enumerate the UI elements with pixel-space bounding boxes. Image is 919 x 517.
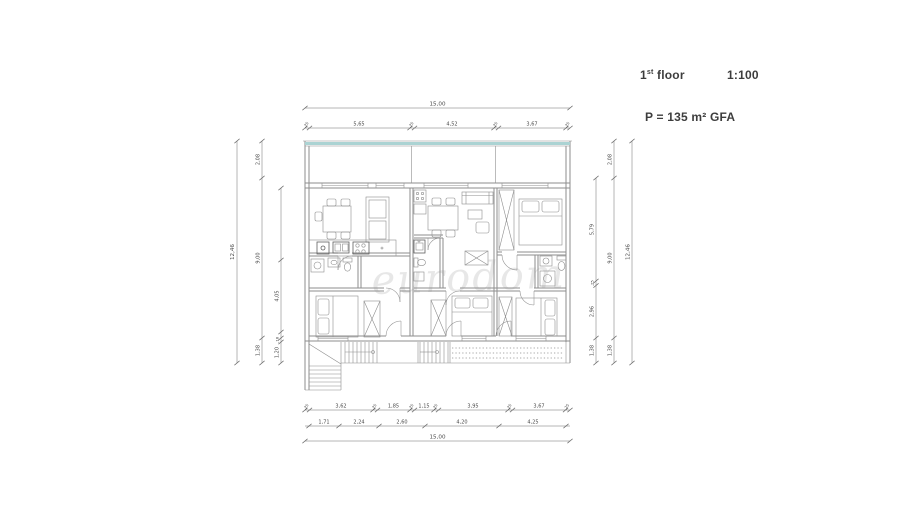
bedroom-right-bottom	[499, 297, 557, 336]
gallery-hatch	[452, 348, 564, 358]
chair	[432, 230, 441, 237]
coffee-table	[468, 210, 482, 219]
dim-label: 2,08	[608, 154, 614, 165]
dim-label: 3,95	[467, 404, 478, 410]
sink-icon	[333, 242, 349, 253]
dim-label: 9,00	[256, 252, 262, 263]
dim-label: ,25	[370, 402, 378, 410]
hob-icon	[414, 190, 426, 202]
dim-label: 12,46	[230, 244, 236, 260]
bedroom-right-top	[499, 190, 562, 250]
dim-label: 5,65	[353, 122, 364, 128]
double-bed	[519, 199, 562, 245]
dim-label: 12,46	[626, 244, 632, 260]
toilet-icon	[343, 258, 352, 262]
dim-label: ,25	[590, 280, 595, 287]
dim-label: 4,20	[456, 420, 467, 426]
bathroom-left	[311, 258, 352, 272]
pillow	[545, 300, 555, 316]
dim-label: 1,38	[608, 345, 614, 356]
dim-label: 5,79	[590, 224, 596, 235]
dim-label: 1,38	[590, 345, 596, 356]
dim-label: 9,00	[608, 252, 614, 263]
living-dining-left	[315, 197, 389, 242]
fridge-icon	[414, 204, 426, 214]
pillow	[522, 201, 539, 212]
double-bed	[316, 296, 358, 337]
dim-label: 3,67	[526, 122, 537, 128]
dim-label: ,25	[431, 402, 439, 410]
sofa	[462, 192, 493, 204]
double-bed	[452, 296, 492, 336]
bedroom-left	[316, 296, 380, 337]
dim-label: 3,67	[533, 404, 544, 410]
drawing-sheet: 1st floor 1:100 P = 135 m² GFA eurodom	[0, 0, 919, 517]
stairs-and-gallery	[305, 342, 570, 390]
dim-label: 1,15	[418, 404, 429, 410]
dim-label: ,25	[407, 402, 415, 410]
dim-label: 1,85	[388, 404, 399, 410]
dim-label: 1,38	[256, 345, 262, 356]
stair-break-line	[309, 344, 341, 364]
dim-label: 1,20	[275, 347, 281, 358]
dim-label: ,25	[563, 120, 571, 128]
dim-label: 1,71	[318, 420, 329, 426]
stair-flight-left	[309, 366, 341, 386]
armchair	[476, 222, 489, 233]
dim-label: 3,62	[335, 404, 346, 410]
washing-machine-icon	[311, 259, 324, 272]
dim-label: 2,96	[590, 306, 596, 317]
dim-label: 2,60	[396, 420, 407, 426]
pillow	[545, 319, 555, 335]
stair-flight-second	[420, 342, 448, 363]
floor-plan-svg: eurodom	[0, 0, 919, 517]
pillow	[318, 299, 329, 315]
chair	[446, 230, 455, 237]
chair	[315, 212, 322, 221]
dim-label: 4,25	[527, 420, 538, 426]
balcony-glazing	[303, 141, 572, 146]
dishwasher-icon	[317, 242, 329, 254]
pillow	[318, 318, 329, 334]
pillow	[542, 201, 559, 212]
chair	[327, 199, 336, 206]
chair	[341, 199, 350, 206]
double-bed	[516, 298, 557, 336]
dim-label: ,25	[407, 120, 415, 128]
dim-label: 15,00	[429, 435, 445, 441]
dim-label: ,25	[302, 120, 310, 128]
stair-flight-top	[345, 342, 377, 363]
chair	[446, 198, 455, 205]
kitchen-left	[309, 240, 396, 256]
stove-icon	[353, 242, 369, 254]
chair	[432, 198, 441, 205]
dim-label: ,25	[562, 402, 570, 410]
dining-table	[428, 206, 458, 230]
dim-label: 4,52	[446, 122, 457, 128]
dining-table	[323, 206, 351, 232]
sofa	[366, 197, 389, 242]
dim-label: ,25	[302, 402, 310, 410]
chair	[341, 232, 350, 239]
dim-label: 2,08	[256, 154, 262, 165]
dim-label: ,25	[491, 120, 499, 128]
bedroom-middle	[431, 296, 492, 336]
dim-label: ,25	[505, 402, 513, 410]
dim-label: 4,05	[275, 290, 281, 301]
dim-label: 15,00	[429, 102, 445, 108]
chair	[327, 232, 336, 239]
dim-label: ,18	[275, 336, 280, 343]
dim-label: 2,24	[353, 420, 364, 426]
